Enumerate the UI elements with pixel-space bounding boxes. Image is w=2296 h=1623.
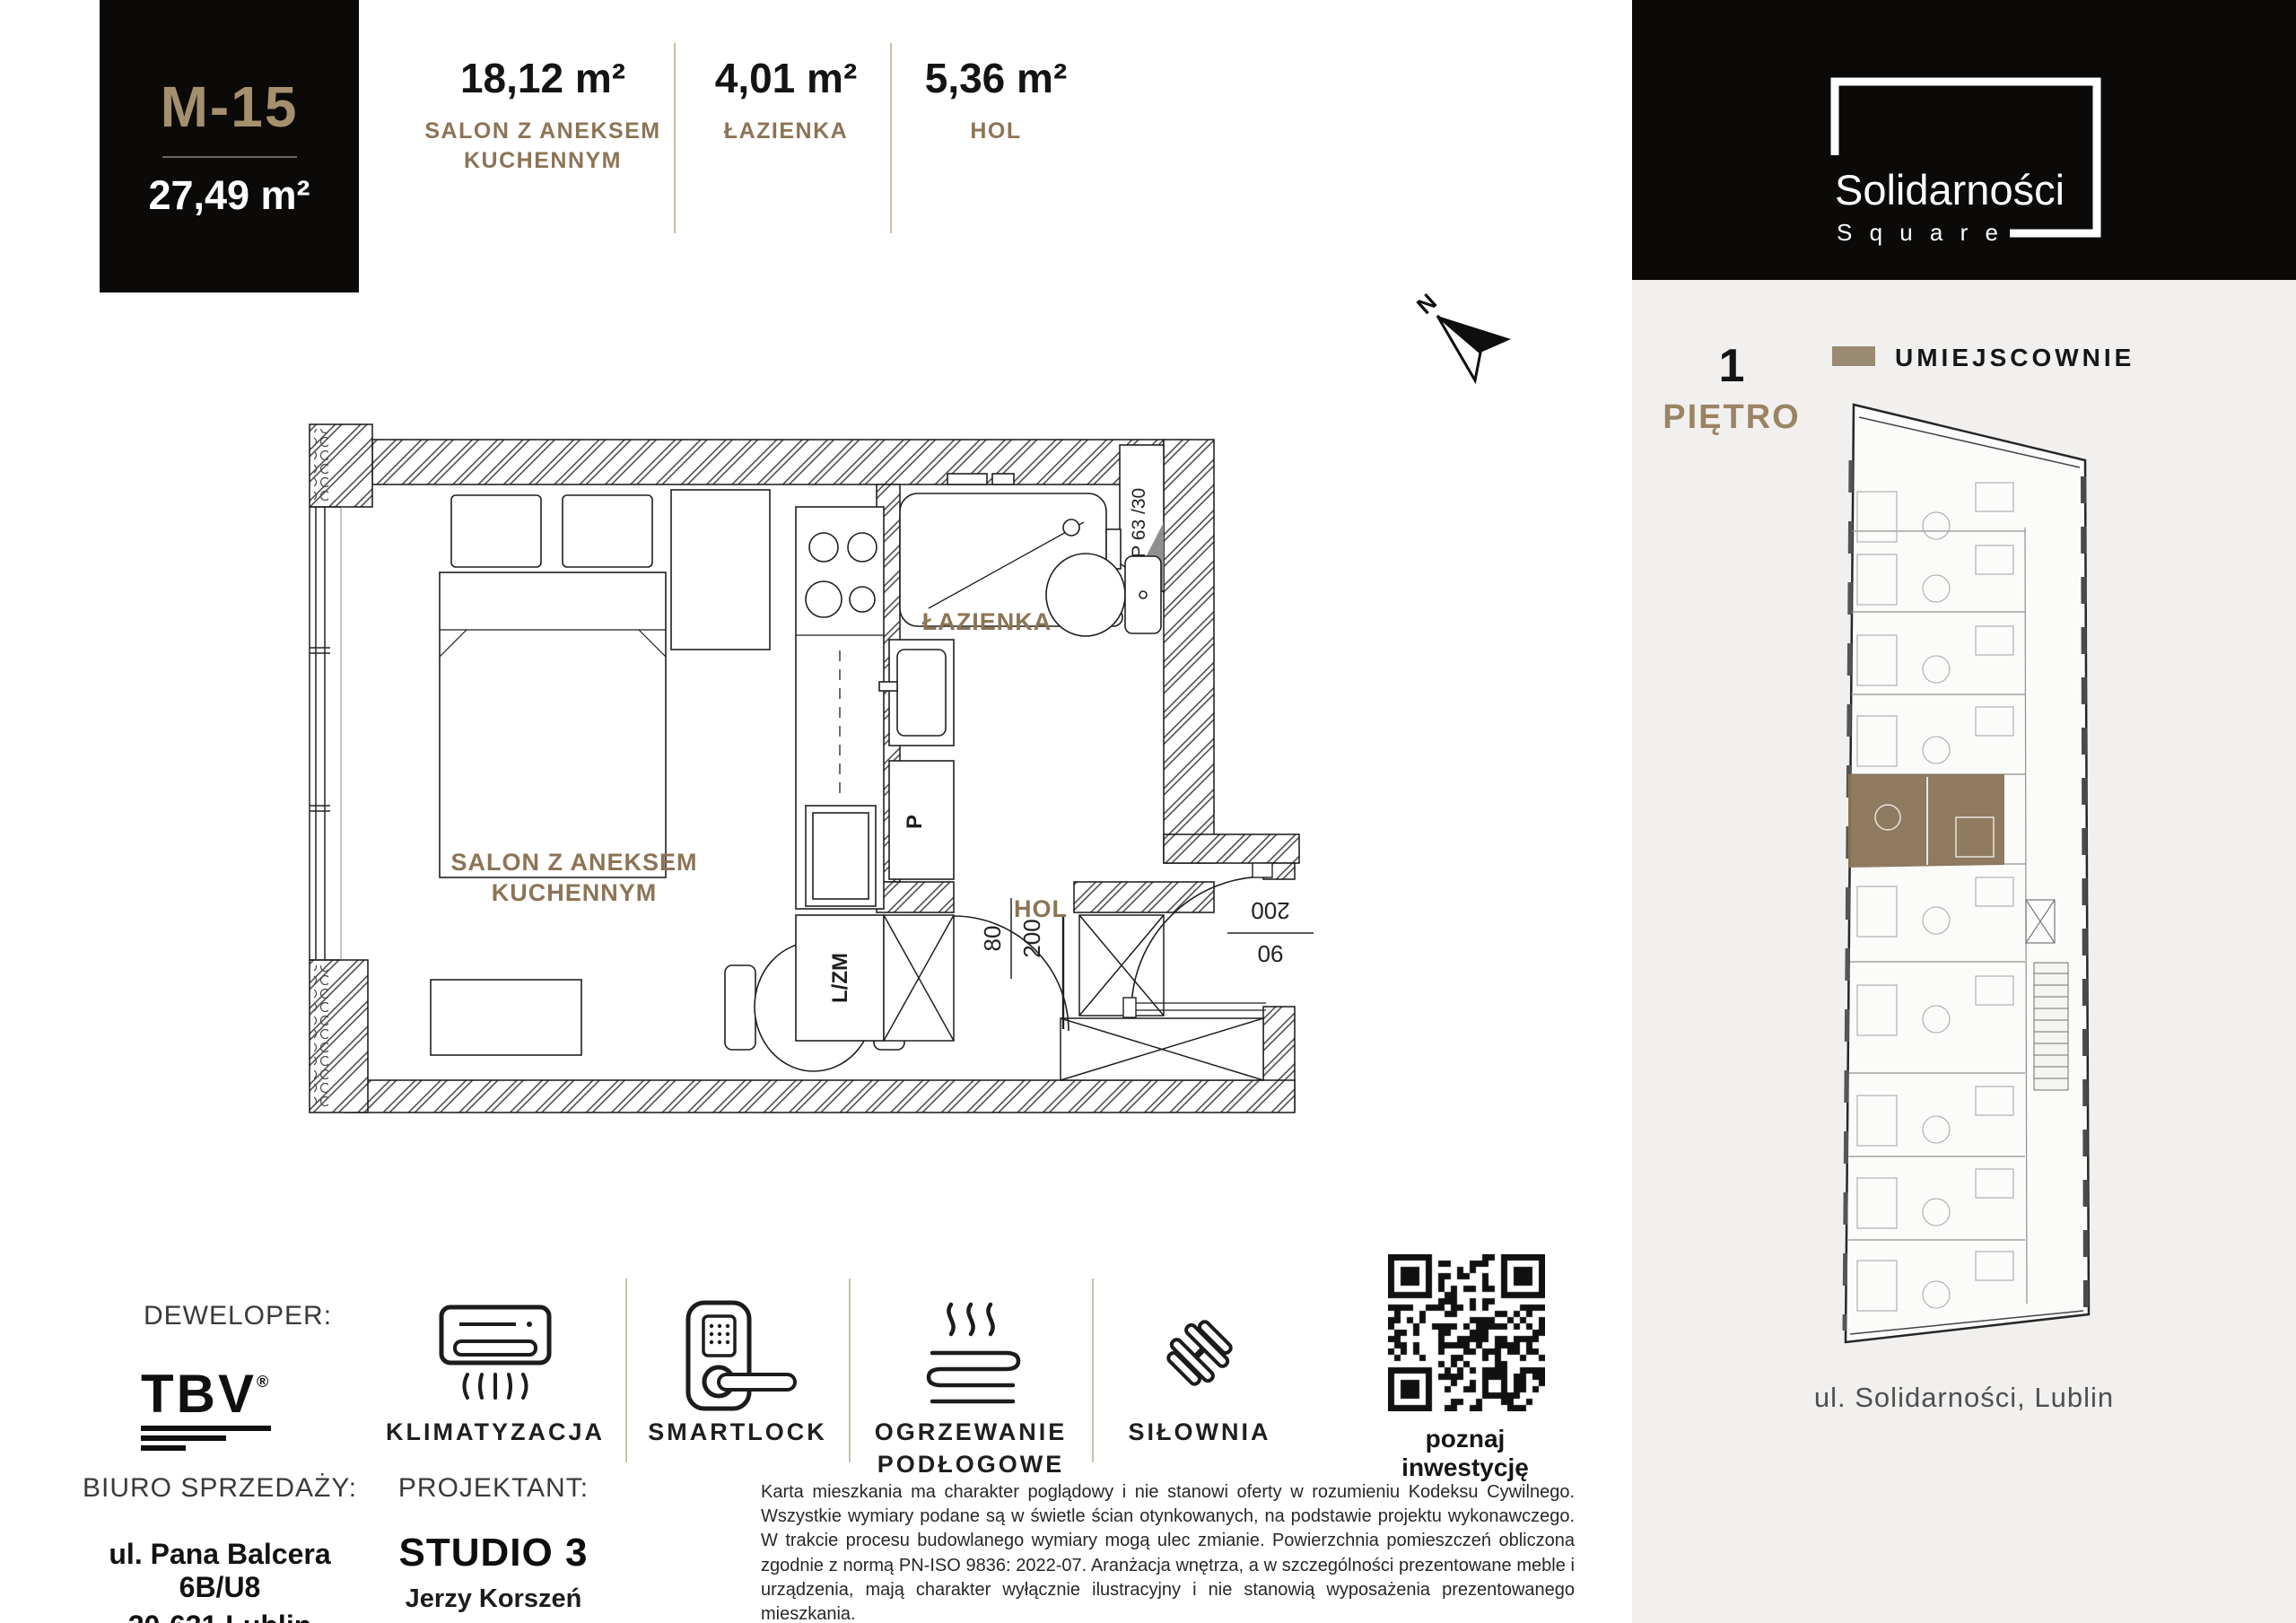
floor-plan: OP 63 /30 [305, 422, 1355, 1166]
tbv-underline [141, 1435, 226, 1441]
sideboard [431, 980, 581, 1055]
dumbbell-icon [1146, 1299, 1253, 1407]
designer-label: PROJEKTANT: [390, 1473, 597, 1504]
air-conditioner-icon [437, 1303, 554, 1401]
stat-lazienka-label: ŁAZIENKA [683, 117, 889, 146]
stat-lazienka: 4,01 m² ŁAZIENKA [683, 54, 889, 146]
qr-caption: poznaj inwestycję [1361, 1425, 1569, 1482]
developer-logo: TBV® [141, 1355, 271, 1451]
svg-text:90: 90 [1258, 940, 1284, 967]
highlighted-unit [1848, 774, 2004, 868]
tbv-brand: TBV [141, 1364, 257, 1424]
sales-office-label: BIURO SPRZEDAŻY: [76, 1473, 363, 1504]
floor-number: 1 [1687, 339, 1777, 393]
street-address: ul. Solidarności, Lublin [1632, 1382, 2296, 1414]
entry-door-dimension: 90 200 [1227, 897, 1314, 967]
legend-label: UMIEJSCOWNIE [1895, 344, 2134, 372]
stat-hol-value: 5,36 m² [899, 54, 1093, 102]
brand-logo: Solidarności S q u a r e [1632, 0, 2296, 280]
sales-office-address-1: ul. Pana Balcera 6B/U8 [76, 1538, 363, 1604]
brand-sub: S q u a r e [1837, 219, 2004, 246]
disclaimer-text: Karta mieszkania ma charakter poglądowy … [761, 1480, 1575, 1623]
stove-burner [848, 533, 877, 562]
stat-salon-value: 18,12 m² [404, 54, 682, 102]
sales-office: BIURO SPRZEDAŻY: ul. Pana Balcera 6B/U8 … [76, 1473, 363, 1623]
unit-card: M-15 27,49 m² [100, 0, 359, 292]
stat-hol-label: HOL [899, 117, 1093, 146]
insulation [314, 965, 328, 1107]
unit-total-area: 27,49 m² [148, 172, 310, 219]
salon-label-2: KUCHENNYM [492, 879, 658, 906]
washer-label: L/ZM [828, 953, 852, 1003]
toilet [1046, 554, 1161, 636]
developer-label: DEWELOPER: [144, 1301, 332, 1331]
feature-smartlock: SMARTLOCK [603, 1416, 872, 1448]
insulation [314, 429, 328, 504]
brand-header: Solidarności S q u a r e [1632, 0, 2296, 280]
designer-block: PROJEKTANT: STUDIO 3 Jerzy Korszeń [390, 1473, 597, 1614]
stat-salon: 18,12 m² SALON Z ANEKSEM KUCHENNYM [404, 54, 682, 176]
legend-swatch [1832, 346, 1875, 366]
salon-label: SALON Z ANEKSEM [450, 849, 697, 876]
stove-burner [806, 581, 842, 617]
building-windows-right [2083, 476, 2086, 1309]
north-arrow-icon: N [1395, 265, 1575, 444]
shaft-boxes [884, 915, 1263, 1080]
north-letter: N [1411, 288, 1442, 319]
designer-studio: STUDIO 3 [390, 1531, 597, 1575]
stove-burner [809, 533, 838, 562]
stat-lazienka-value: 4,01 m² [683, 54, 889, 102]
stat-divider [674, 43, 676, 233]
apartment-card: M-15 27,49 m² 18,12 m² SALON Z ANEKSEM K… [0, 0, 2296, 1623]
wardrobe [671, 490, 770, 650]
building-key-plan [1841, 397, 2101, 1354]
brand-name: Solidarności [1835, 166, 2065, 214]
svg-text:200: 200 [1018, 919, 1045, 957]
lazienka-label: ŁAZIENKA [922, 608, 1052, 635]
svg-text:200: 200 [1251, 897, 1289, 924]
svg-text:80: 80 [979, 926, 1006, 952]
feature-ogrzewanie: OGRZEWANIE PODŁOGOWE [845, 1416, 1096, 1480]
unit-code: M-15 [161, 74, 299, 140]
tbv-underline [141, 1426, 271, 1431]
floor-heating-icon [912, 1301, 1029, 1410]
stat-hol: 5,36 m² HOL [899, 54, 1093, 146]
stove-burner [850, 587, 875, 612]
hol-label: HOL [1014, 895, 1068, 922]
tbv-registered-mark: ® [257, 1373, 271, 1391]
qr-code [1388, 1254, 1545, 1411]
building-stairs [2034, 963, 2068, 1090]
designer-name: Jerzy Korszeń [390, 1584, 597, 1614]
smartlock-icon [675, 1299, 805, 1414]
sink [879, 640, 954, 746]
floor-label: PIĘTRO [1651, 398, 1812, 437]
cabinet-label: P [903, 815, 927, 829]
sales-office-address-2: 20-631 Lublin [76, 1610, 363, 1623]
tbv-underline [141, 1445, 186, 1451]
feature-silownia: SIŁOWNIA [1074, 1416, 1325, 1448]
unit-separator [162, 156, 297, 158]
stat-divider [890, 43, 892, 233]
balcony-window [310, 507, 341, 960]
feature-klimatyzacja: KLIMATYZACJA [365, 1416, 625, 1448]
bed [440, 490, 770, 877]
stat-salon-label: SALON Z ANEKSEM KUCHENNYM [404, 117, 682, 176]
